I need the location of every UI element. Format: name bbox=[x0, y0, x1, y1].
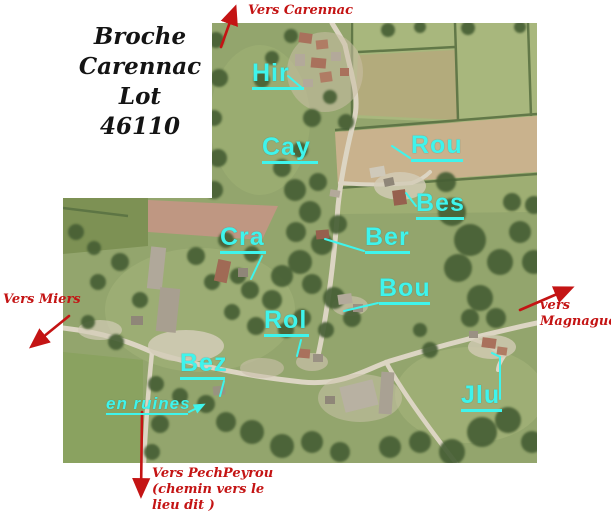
title-line-postcode: 46110 bbox=[62, 112, 218, 142]
ruins-annotation: en ruines bbox=[106, 394, 188, 415]
place-label-rou: Rou bbox=[411, 132, 463, 162]
place-label-hir: Hir bbox=[252, 60, 304, 90]
place-label-cay: Cay bbox=[262, 134, 318, 164]
caption-magnagues-line2: Magnagues bbox=[540, 314, 611, 330]
title-line-town: Carennac bbox=[62, 52, 218, 82]
caption-vers-magnagues: vers Magnagues bbox=[540, 298, 611, 330]
place-label-bes: Bes bbox=[416, 190, 464, 220]
caption-pechpeyrou-line3: lieu dit ) bbox=[152, 498, 273, 514]
caption-magnagues-line1: vers bbox=[540, 298, 611, 314]
place-label-rol: Rol bbox=[264, 307, 309, 337]
place-label-bou: Bou bbox=[379, 275, 430, 305]
place-label-ber: Ber bbox=[365, 224, 410, 254]
place-label-jlu: Jlu bbox=[461, 382, 502, 412]
arrow-south bbox=[141, 412, 142, 495]
title-line-department: Lot bbox=[62, 82, 218, 112]
place-label-bez: Bez bbox=[180, 350, 225, 380]
caption-pechpeyrou-line2: (chemin vers le bbox=[152, 482, 273, 498]
place-label-cra: Cra bbox=[220, 224, 266, 254]
annotated-aerial-map: Broche Carennac Lot 46110 Hir Cay Rou Be… bbox=[0, 0, 611, 517]
caption-vers-pechpeyrou: Vers PechPeyrou (chemin vers le lieu dit… bbox=[152, 466, 273, 514]
title-line-commune: Broche bbox=[62, 22, 218, 52]
map-title: Broche Carennac Lot 46110 bbox=[62, 22, 218, 142]
caption-pechpeyrou-line1: Vers PechPeyrou bbox=[152, 466, 273, 482]
caption-vers-carennac: Vers Carennac bbox=[248, 3, 353, 19]
caption-vers-miers: Vers Miers bbox=[3, 292, 81, 308]
